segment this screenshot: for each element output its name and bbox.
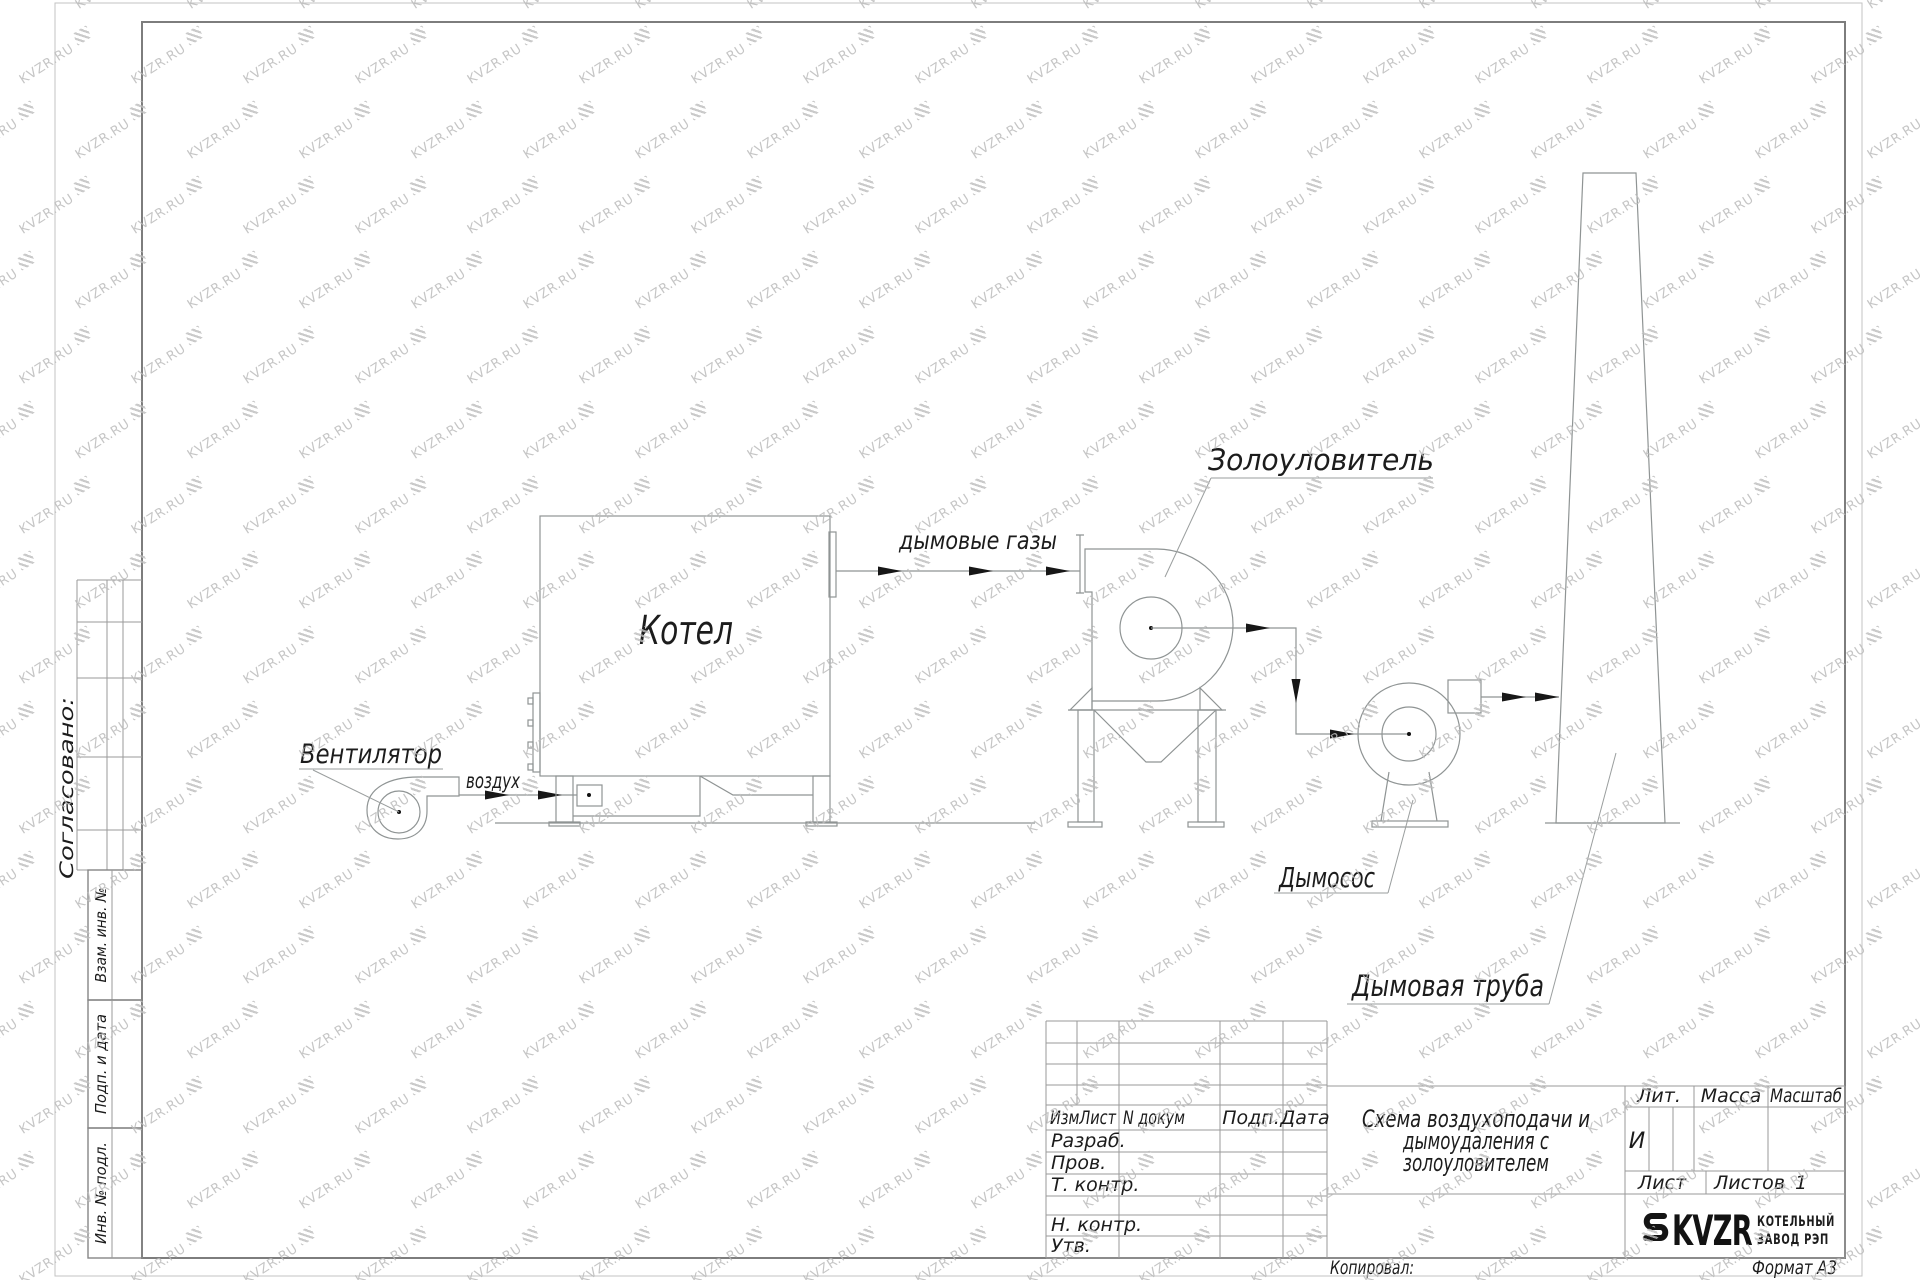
boiler-hinge <box>528 698 533 704</box>
change-col-podp: Подп. <box>1222 1107 1280 1129</box>
drawing-title-line3: золоуловителем <box>1403 1149 1549 1177</box>
boiler-door-strip <box>533 693 540 772</box>
smoke-exhauster-leader <box>1388 800 1413 893</box>
role-t-kontr: Т. контр. <box>1051 1174 1139 1196</box>
flue-gas-flow: дымовые газы <box>836 526 1080 576</box>
inv-podl-label: Инв. № подл. <box>92 1142 110 1244</box>
role-razrab: Разраб. <box>1051 1130 1126 1152</box>
boiler-left-leg <box>556 776 573 822</box>
massa-label: Масса <box>1701 1085 1762 1107</box>
air-label: воздух <box>466 769 520 793</box>
fan-volute <box>367 777 459 839</box>
boiler-hinge <box>528 742 533 748</box>
coil-icon <box>1646 1216 1665 1238</box>
air-arrow-icon <box>538 791 562 800</box>
exhauster-base <box>1372 821 1448 827</box>
cyclone-inlet-flange <box>1076 535 1084 593</box>
cyclone-left-foot <box>1068 822 1102 827</box>
left-margin-stamps: Согласовано: Взам. инв. № Подп. и дата И… <box>56 580 142 1258</box>
lit-label: Лит. <box>1636 1085 1681 1107</box>
cyclone-body <box>1085 549 1233 701</box>
cyclone-to-exhauster-flow <box>1151 624 1409 739</box>
chimney: Дымовая труба <box>1347 173 1680 1004</box>
masshtab-label: Масштаб <box>1770 1085 1842 1107</box>
cyclone-right-foot <box>1188 822 1224 827</box>
cyclone-gusset <box>1200 688 1222 710</box>
change-col-izm-list: ИзмЛист <box>1050 1107 1117 1129</box>
boiler-hinge <box>528 764 533 770</box>
vzam-inv-label: Взам. инв. № <box>92 888 110 983</box>
burner-center-dot <box>587 793 591 797</box>
boiler-underbox <box>573 776 700 816</box>
exhauster-center-dot <box>1407 732 1411 736</box>
kvzr-logo: KVZR КОТЕЛЬНЫЙ ЗАВОД РЭП <box>1646 1206 1835 1255</box>
listov-label: Листов <box>1713 1172 1785 1194</box>
chimney-body <box>1556 173 1665 823</box>
ash-collector-leader <box>1165 478 1211 577</box>
chimney-leader <box>1549 753 1616 1004</box>
smoke-exhauster-label: Дымосос <box>1278 861 1376 894</box>
duct-arrow-icon <box>1535 693 1559 702</box>
fan: Вентилятор <box>299 739 459 839</box>
logo-line2: ЗАВОД РЭП <box>1757 1232 1829 1248</box>
role-prov: Пров. <box>1051 1152 1106 1174</box>
flue-arrow-icon <box>969 567 993 576</box>
frame <box>55 3 1862 1276</box>
lit-value: И <box>1629 1129 1645 1154</box>
ash-collector-label: Золоуловитель <box>1208 443 1434 477</box>
logo-line1: КОТЕЛЬНЫЙ <box>1757 1213 1835 1230</box>
approval-grid <box>77 580 142 870</box>
chimney-label: Дымовая труба <box>1350 969 1544 1003</box>
air-flow: воздух <box>459 769 577 800</box>
flue-arrow-icon <box>878 567 902 576</box>
inner-frame <box>142 22 1845 1258</box>
flue-arrow-icon <box>1046 567 1070 576</box>
schematic-svg: Согласовано: Взам. инв. № Подп. и дата И… <box>0 0 1920 1280</box>
boiler: Котел <box>495 516 1035 826</box>
boiler-label: Котел <box>639 608 733 654</box>
flue-gases-label: дымовые газы <box>898 526 1057 555</box>
cyclone-left-leg <box>1078 710 1094 822</box>
ash-collector: Золоуловитель <box>1068 443 1434 827</box>
format-label: Формат А3 <box>1752 1257 1837 1279</box>
role-utv: Утв. <box>1051 1235 1091 1257</box>
boiler-right-leg <box>813 776 830 822</box>
logo-brand: KVZR <box>1672 1206 1752 1255</box>
fan-label: Вентилятор <box>300 739 442 770</box>
duct-arrow-icon <box>1246 624 1270 633</box>
duct-arrow-icon <box>1502 693 1526 702</box>
cyclone-right-leg <box>1198 710 1216 822</box>
exhauster-to-chimney-flow <box>1481 693 1559 702</box>
cyclone-gusset <box>1070 688 1092 710</box>
approved-label: Согласовано: <box>56 697 78 879</box>
role-n-kontr: Н. контр. <box>1051 1214 1142 1236</box>
duct-arrow-icon <box>1292 679 1301 703</box>
listov-value: 1 <box>1795 1172 1807 1194</box>
duct-arrow-icon <box>1330 730 1354 739</box>
kopiroval-label: Копировал: <box>1330 1257 1414 1279</box>
boiler-ash-slope <box>700 776 813 795</box>
change-col-n-dokum: N докум <box>1123 1107 1185 1129</box>
fan-leader-line <box>313 770 399 812</box>
outer-border <box>55 3 1862 1276</box>
podp-data-label: Подп. и дата <box>92 1014 110 1114</box>
list-label: Лист <box>1637 1172 1687 1194</box>
drawing-sheet: Согласовано: Взам. инв. № Подп. и дата И… <box>0 0 1920 1280</box>
change-col-data: Дата <box>1279 1107 1329 1129</box>
diagram: Вентилятор воздух <box>299 173 1680 1004</box>
boiler-hinge <box>528 720 533 726</box>
smoke-exhauster: Дымосос <box>1274 680 1481 894</box>
connecting-duct-line <box>1151 628 1409 734</box>
title-block: ИзмЛист N докум Подп. Дата Разраб. Пров.… <box>1046 1021 1845 1279</box>
